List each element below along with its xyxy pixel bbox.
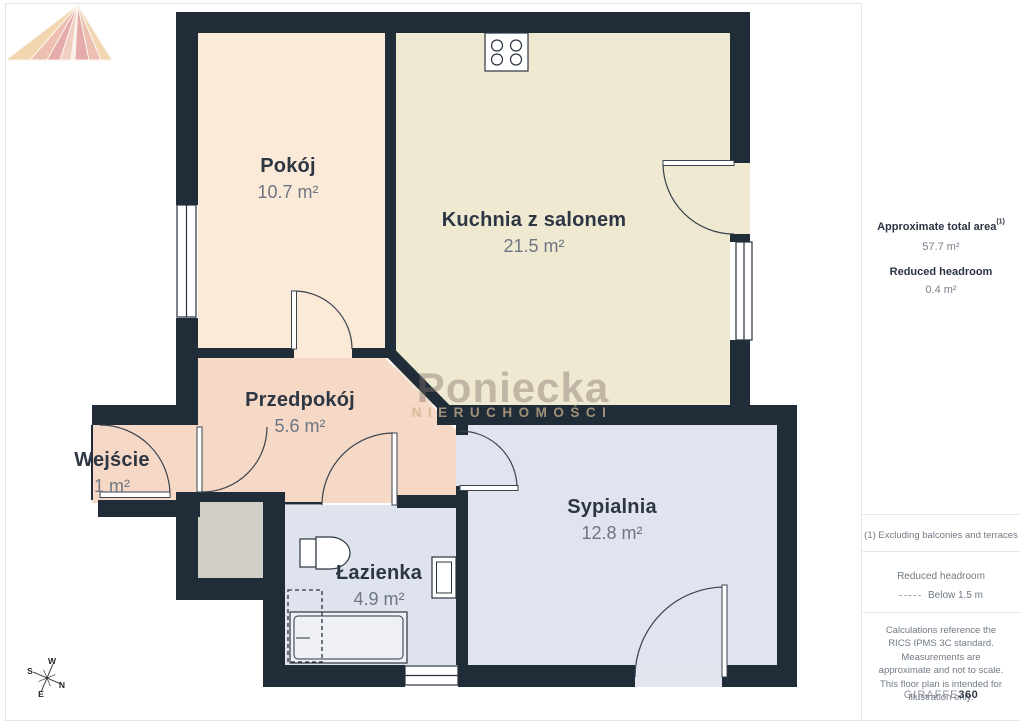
room-label-wejscie: Wejście 1 m²: [74, 448, 150, 497]
room-name: Sypialnia: [567, 495, 657, 519]
door-leaf: [460, 486, 518, 491]
footnote-ref: (1): [996, 219, 1005, 226]
room-label-lazienka: Łazienka 4.9 m²: [336, 561, 422, 610]
legend-value: Below 1.5 m: [928, 590, 983, 601]
room-area: 4.9 m²: [336, 588, 422, 610]
wall-segment: [456, 486, 468, 665]
room-label-sypialnia: Sypialnia 12.8 m²: [567, 495, 657, 544]
wall-segment: [92, 405, 198, 425]
wall-segment: [176, 12, 750, 33]
bedroom-door-gap: [456, 433, 468, 488]
floor-plan-page: Poniecka NIERUCHOMOŚCI Pokój 10.7 m² Kuc…: [0, 0, 1024, 724]
bathtub-icon: [290, 612, 407, 663]
compass-south-label: S: [27, 666, 33, 676]
door-leaf: [722, 585, 727, 677]
door-leaf: [663, 161, 734, 166]
wall-segment: [263, 665, 405, 687]
compass-rose: W S N E: [20, 651, 76, 707]
compass-west-label: W: [48, 656, 57, 666]
kitchen-balcony-door-gap: [730, 163, 750, 237]
pokoj-door-gap: [294, 348, 352, 358]
door-leaf: [292, 291, 297, 349]
door-leaf: [197, 427, 202, 492]
wall-segment: [730, 340, 750, 408]
legend-label: Reduced headroom: [862, 571, 1020, 582]
room-area: 5.6 m²: [245, 415, 355, 437]
footnote-text: (1) Excluding balconies and terraces: [862, 530, 1020, 541]
room-area: 10.7 m²: [257, 181, 318, 203]
compass-star-icon: [33, 664, 61, 692]
wall-segment: [777, 405, 797, 687]
wall-segment: [198, 492, 263, 502]
watermark-subtitle: NIERUCHOMOŚCI: [412, 405, 613, 420]
wall-segment: [456, 425, 468, 435]
room-label-pokoj: Pokój 10.7 m²: [257, 154, 318, 203]
wall-segment: [176, 33, 198, 205]
divider: [862, 551, 1020, 552]
room-name: Kuchnia z salonem: [442, 208, 627, 232]
door-leaf: [392, 433, 397, 505]
bedroom-floor: [468, 425, 777, 665]
room-area: 12.8 m²: [567, 522, 657, 544]
room-label-przedpokoj: Przedpokój 5.6 m²: [245, 388, 355, 437]
reduced-headroom-label: Reduced headroom: [862, 266, 1020, 278]
compass-north-label: N: [59, 680, 65, 690]
sink-icon: [432, 557, 456, 598]
brand-prefix: GIRAFFE: [904, 689, 959, 701]
wall-segment: [730, 234, 750, 242]
room-name: Pokój: [257, 154, 318, 178]
bedroom-balcony-door-gap: [635, 665, 722, 687]
legend-row: Below 1.5 m: [862, 590, 1020, 601]
approx-area-value: 57.7 m²: [862, 241, 1020, 253]
brand-suffix: 360: [958, 689, 978, 701]
floor-plan: Poniecka NIERUCHOMOŚCI Pokój 10.7 m² Kuc…: [0, 0, 860, 724]
wall-segment: [385, 33, 396, 348]
dashed-line-sample: [899, 595, 921, 596]
area-summary: Approximate total area(1) 57.7 m² Reduce…: [862, 217, 1020, 296]
reduced-headroom-value: 0.4 m²: [862, 284, 1020, 296]
wall-segment: [730, 33, 750, 163]
logo-pyramid: [6, 5, 112, 60]
room-name: Wejście: [74, 448, 150, 472]
room-name: Łazienka: [336, 561, 422, 585]
wall-segment: [263, 492, 285, 665]
approx-area-label: Approximate total area(1): [862, 217, 1020, 235]
wall-segment: [722, 665, 797, 687]
room-name: Przedpokój: [245, 388, 355, 412]
room-area: 1 m²: [74, 475, 150, 497]
wall-segment: [458, 665, 635, 687]
wall-segment: [176, 492, 198, 580]
watermark-logo-icon: [0, 0, 126, 62]
compass-east-label: E: [38, 689, 44, 699]
giraffe360-logo: GIRAFFE360: [862, 689, 1020, 701]
reduced-headroom-legend: Reduced headroom Below 1.5 m: [862, 571, 1020, 601]
wall-segment: [176, 348, 294, 358]
stove-icon: [485, 33, 528, 71]
room-label-kuchnia: Kuchnia z salonem 21.5 m²: [442, 208, 627, 257]
floor-plan-drawing: [0, 0, 860, 724]
info-sidebar: Approximate total area(1) 57.7 m² Reduce…: [861, 3, 1020, 720]
room-area: 21.5 m²: [442, 235, 627, 257]
divider: [862, 612, 1020, 613]
wall-segment: [285, 502, 322, 505]
wall-segment: [397, 495, 458, 508]
shaft-floor: [198, 500, 263, 578]
divider: [862, 514, 1020, 515]
